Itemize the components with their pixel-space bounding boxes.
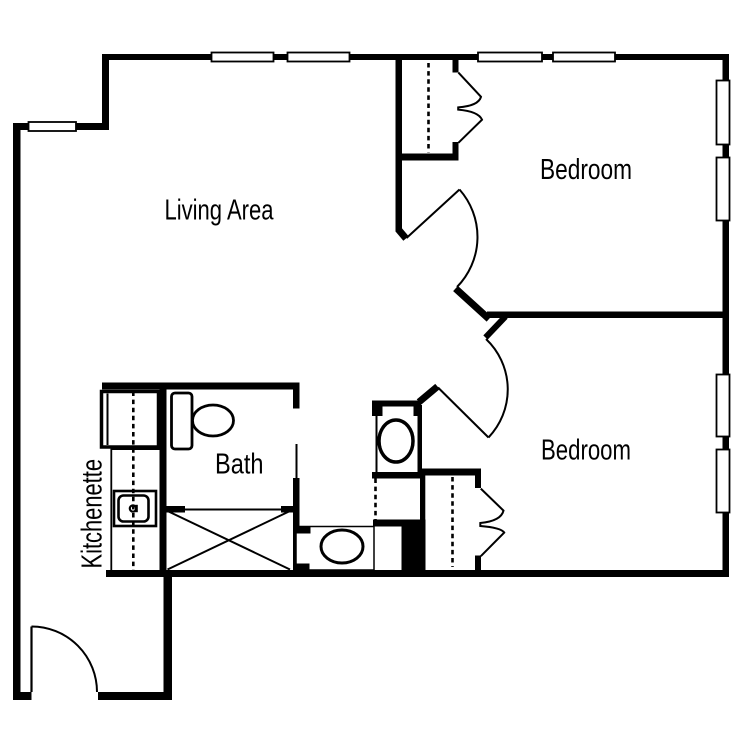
svg-text:Bedroom: Bedroom xyxy=(541,435,631,467)
svg-text:Kitchenette: Kitchenette xyxy=(77,459,109,569)
svg-text:Bath: Bath xyxy=(215,449,264,481)
svg-text:Bedroom: Bedroom xyxy=(540,154,632,186)
svg-text:Living Area: Living Area xyxy=(165,195,275,227)
